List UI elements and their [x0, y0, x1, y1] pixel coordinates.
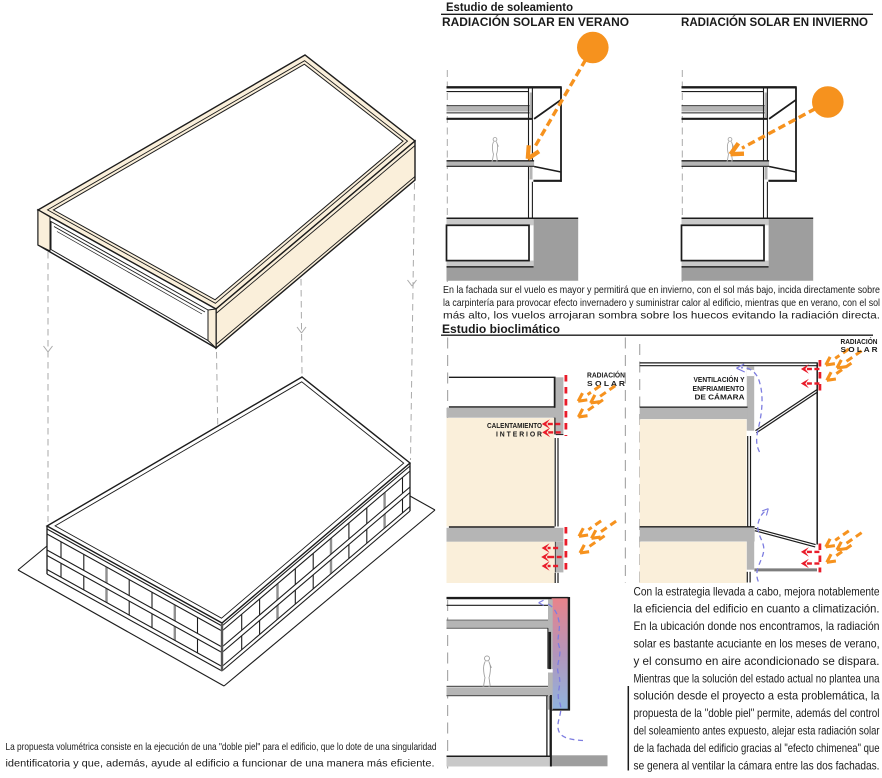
svg-text:se genera al ventilar la cámar: se genera al ventilar la cámara entre la… — [634, 758, 880, 772]
svg-text:S O L A R: S O L A R — [841, 347, 878, 354]
svg-text:y el consumo en aire acondicio: y el consumo en aire acondicionado se di… — [634, 654, 880, 668]
svg-text:Estudio de soleamiento: Estudio de soleamiento — [446, 0, 573, 14]
svg-text:la eficiencia del edificio en: la eficiencia del edificio en cuanto a c… — [634, 602, 880, 616]
svg-text:RADIACIÓN SOLAR EN VERANO: RADIACIÓN SOLAR EN VERANO — [442, 14, 629, 29]
svg-text:DE CÁMARA: DE CÁMARA — [695, 392, 745, 401]
svg-text:CALENTAMIENTO: CALENTAMIENTO — [487, 423, 542, 430]
svg-text:identificatoria y que, además,: identificatoria y que, además, ayude al … — [6, 757, 435, 769]
svg-text:propuesta de la "doble piel" p: propuesta de la "doble piel" permite, ad… — [634, 706, 880, 720]
svg-text:La propuesta volumétrica consi: La propuesta volumétrica consiste en la … — [6, 741, 437, 753]
svg-text:de la fachada del edificio gra: de la fachada del edificio gracias al "e… — [634, 741, 880, 755]
svg-text:RADIACIÓN: RADIACIÓN — [841, 337, 878, 346]
svg-text:la carpintería para provocar e: la carpintería para provocar efecto inve… — [443, 297, 880, 309]
svg-text:RADIACIÓN SOLAR EN INVIERNO: RADIACIÓN SOLAR EN INVIERNO — [681, 14, 868, 29]
svg-text:En la ubicación donde nos enco: En la ubicación donde nos encontramos, l… — [634, 619, 880, 633]
svg-text:En la fachada sur el vuelo es: En la fachada sur el vuelo es mayor y pe… — [443, 284, 880, 296]
svg-text:solución desde el proyecto a e: solución desde el proyecto a esta proble… — [634, 689, 880, 703]
svg-text:solar es bastante acuciante en: solar es bastante acuciante en los meses… — [634, 637, 880, 651]
svg-text:Mientras que la solución del e: Mientras que la solución del estado actu… — [634, 671, 880, 685]
svg-text:VENTILACIÓN Y: VENTILACIÓN Y — [694, 375, 745, 384]
svg-text:S O L A R: S O L A R — [587, 381, 625, 388]
svg-text:Estudio bioclimático: Estudio bioclimático — [442, 322, 560, 336]
svg-text:RADIACIÓN: RADIACIÓN — [587, 371, 625, 380]
svg-text:Con la estrategia llevada a ca: Con la estrategia llevada a cabo, mejora… — [634, 584, 880, 598]
svg-text:ENFRIAMIENTO: ENFRIAMIENTO — [693, 386, 746, 393]
svg-text:I N T E R I O R: I N T E R I O R — [496, 431, 542, 438]
svg-text:del soleamiento antes expuesto: del soleamiento antes expuesto, alejar e… — [634, 724, 880, 738]
svg-text:más alto, los vuelos arrojaran: más alto, los vuelos arrojaran sombra so… — [443, 310, 880, 322]
